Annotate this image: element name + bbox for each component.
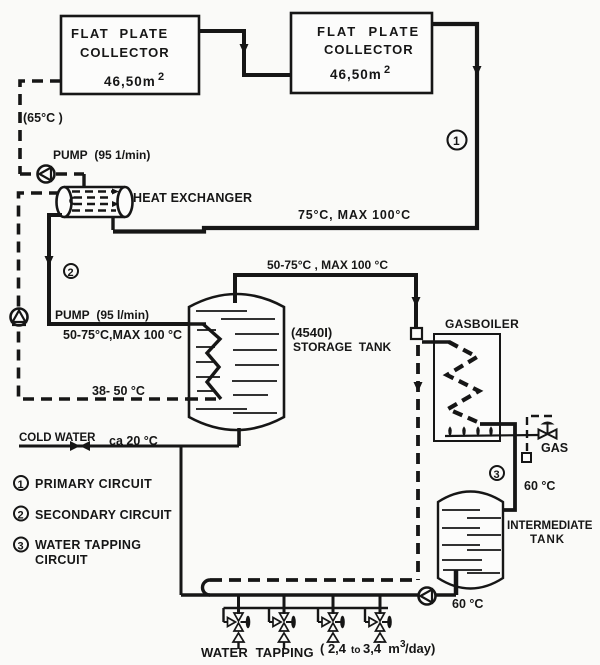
svg-text:50-75°C,MAX 100 °C: 50-75°C,MAX 100 °C xyxy=(63,328,182,342)
svg-text:2: 2 xyxy=(68,267,74,279)
svg-text:2: 2 xyxy=(158,71,164,83)
svg-text:46,50m: 46,50m xyxy=(330,67,382,82)
svg-text:1: 1 xyxy=(18,479,24,491)
svg-text:75°C, MAX 100°C: 75°C, MAX 100°C xyxy=(298,208,411,222)
svg-text:38- 50 °C: 38- 50 °C xyxy=(92,384,145,398)
svg-text:WATER TAPPING: WATER TAPPING xyxy=(35,538,141,552)
svg-text:INTERMEDIATE: INTERMEDIATE xyxy=(507,520,593,532)
svg-text:COLLECTOR: COLLECTOR xyxy=(324,42,414,57)
svg-text:46,50m: 46,50m xyxy=(104,74,156,89)
svg-text:STORAGE TANK: STORAGE TANK xyxy=(293,340,392,354)
svg-text:COLLECTOR: COLLECTOR xyxy=(80,45,170,60)
svg-text:2: 2 xyxy=(18,510,24,522)
svg-text:FLAT PLATE: FLAT PLATE xyxy=(317,24,420,39)
svg-text:(65°C ): (65°C ) xyxy=(23,111,63,125)
svg-text:FLAT PLATE: FLAT PLATE xyxy=(71,26,169,41)
svg-text:3,4 m: 3,4 m xyxy=(363,641,400,656)
svg-text:PUMP (95 l/min): PUMP (95 l/min) xyxy=(55,308,149,322)
svg-text:TANK: TANK xyxy=(530,534,565,546)
svg-text:/day): /day) xyxy=(405,641,435,656)
svg-text:60 °C: 60 °C xyxy=(452,597,483,611)
svg-text:PRIMARY CIRCUIT: PRIMARY CIRCUIT xyxy=(35,477,152,491)
svg-text:ca 20 °C: ca 20 °C xyxy=(109,434,158,448)
svg-text:to: to xyxy=(351,645,360,656)
svg-text:(4540I): (4540I) xyxy=(291,325,332,340)
svg-text:60 °C: 60 °C xyxy=(524,479,555,493)
svg-text:2: 2 xyxy=(384,64,390,76)
svg-text:WATER TAPPING: WATER TAPPING xyxy=(201,645,314,660)
svg-text:SECONDARY CIRCUIT: SECONDARY CIRCUIT xyxy=(35,508,172,522)
svg-text:HEAT EXCHANGER: HEAT EXCHANGER xyxy=(133,191,252,205)
svg-text:3: 3 xyxy=(494,469,500,481)
svg-text:1: 1 xyxy=(453,134,460,148)
svg-text:( 2,4: ( 2,4 xyxy=(320,641,347,656)
svg-text:GASBOILER: GASBOILER xyxy=(445,317,519,331)
svg-text:GAS: GAS xyxy=(541,441,568,455)
svg-text:COLD WATER: COLD WATER xyxy=(19,432,96,444)
svg-text:3: 3 xyxy=(18,541,24,553)
svg-text:50-75°C , MAX 100 °C: 50-75°C , MAX 100 °C xyxy=(267,258,388,272)
svg-text:PUMP (95 1/min): PUMP (95 1/min) xyxy=(53,148,150,162)
svg-text:CIRCUIT: CIRCUIT xyxy=(35,553,88,567)
